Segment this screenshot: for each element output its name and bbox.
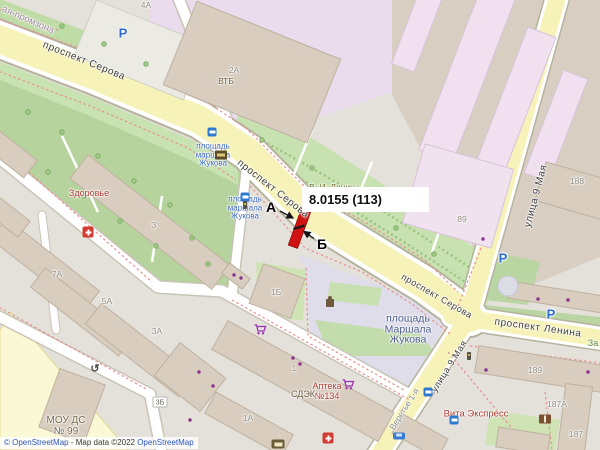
parking-icon[interactable]: Р	[499, 251, 508, 266]
school-label-line: МОУ ДС	[46, 415, 85, 426]
place-label-zhukov-square: площадь Маршала Жукова	[385, 313, 432, 345]
place-label-partial: За	[588, 338, 598, 348]
street-label-9maya-north: улица 9 Мая	[522, 163, 549, 228]
building-number: 189	[528, 365, 542, 375]
bus-stop-line: Жукова	[196, 159, 230, 168]
poi-label-line: №134	[312, 391, 341, 401]
monument-icon[interactable]	[326, 299, 334, 307]
building-number: 7А	[52, 269, 62, 279]
bank-icon[interactable]	[215, 151, 227, 160]
address-badge-3b: 3Б	[152, 397, 167, 408]
parking-icon[interactable]: Р	[119, 26, 128, 41]
building-number: 3	[152, 220, 157, 230]
shopping-cart-icon[interactable]	[342, 377, 355, 395]
labels-overlay: проспект Серова проспект Серова проспект…	[0, 0, 600, 450]
building-number: 2А	[229, 65, 239, 75]
library-icon[interactable]	[539, 415, 551, 424]
poi-label-sdek: СДЭК	[291, 389, 315, 399]
traffic-light-icon	[243, 201, 247, 209]
street-label-serova-1: проспект Серова	[41, 39, 127, 82]
pharmacy-icon[interactable]	[323, 433, 334, 444]
building-number: 1Б	[271, 287, 281, 297]
building-number: 89	[457, 214, 466, 224]
street-label-9maya-south: улица 9 Мая	[429, 338, 469, 393]
measurement-value: 8.0155 (113)	[302, 187, 429, 212]
poi-label-vtb: ВТБ	[218, 76, 234, 86]
attribution-text: - Map data ©2022	[69, 438, 138, 447]
traffic-light-icon	[467, 352, 471, 360]
map-canvas[interactable]: проспект Серова проспект Серова проспект…	[0, 0, 600, 450]
bus-stop-line: Жукова	[228, 212, 262, 221]
map-attribution: © OpenStreetMap - Map data ©2022 OpenStr…	[0, 437, 198, 449]
poi-label-zdorovye: Здоровье	[69, 188, 109, 198]
money-exchange-icon[interactable]	[272, 440, 285, 449]
building-number: 187А	[547, 399, 567, 409]
building-number: 5А	[102, 296, 112, 306]
pharmacy-icon[interactable]	[83, 227, 94, 238]
parking-icon[interactable]: Р	[547, 307, 556, 322]
osm-link[interactable]: OpenStreetMap	[137, 438, 193, 447]
building-number: 4А	[141, 0, 151, 10]
bus-stop-icon[interactable]	[424, 388, 433, 397]
bus-stop-icon[interactable]	[450, 416, 459, 425]
taxi-icon[interactable]	[393, 433, 405, 440]
measurement-tooltip: 8.0155 (113)	[302, 187, 429, 212]
poi-label-apteka: Аптека №134	[312, 381, 341, 401]
shopping-cart-icon[interactable]	[254, 322, 267, 340]
building-number: 188	[570, 176, 584, 186]
building-number: 1А	[243, 413, 253, 423]
school-label-line: № 99	[46, 426, 85, 437]
bus-stop-icon[interactable]	[208, 128, 217, 137]
place-label-line: Жукова	[385, 334, 432, 345]
street-label-veretye: Веретье 1-я	[387, 386, 420, 431]
street-label-lenina: проспект Ленина	[494, 316, 582, 339]
building-number: 3А	[152, 326, 162, 336]
point-a-label: А	[266, 199, 276, 215]
place-label-promzona: ая-промзона	[0, 4, 55, 37]
building-number: 1	[292, 363, 297, 373]
school-label: МОУ ДС № 99	[46, 415, 85, 437]
u-turn-icon	[90, 359, 99, 377]
place-label-line: площадь	[385, 313, 432, 324]
osm-link[interactable]: © OpenStreetMap	[4, 438, 69, 447]
poi-label-line: Аптека	[312, 381, 341, 391]
building-number: 187	[569, 429, 583, 439]
point-b-label: Б	[317, 236, 327, 252]
